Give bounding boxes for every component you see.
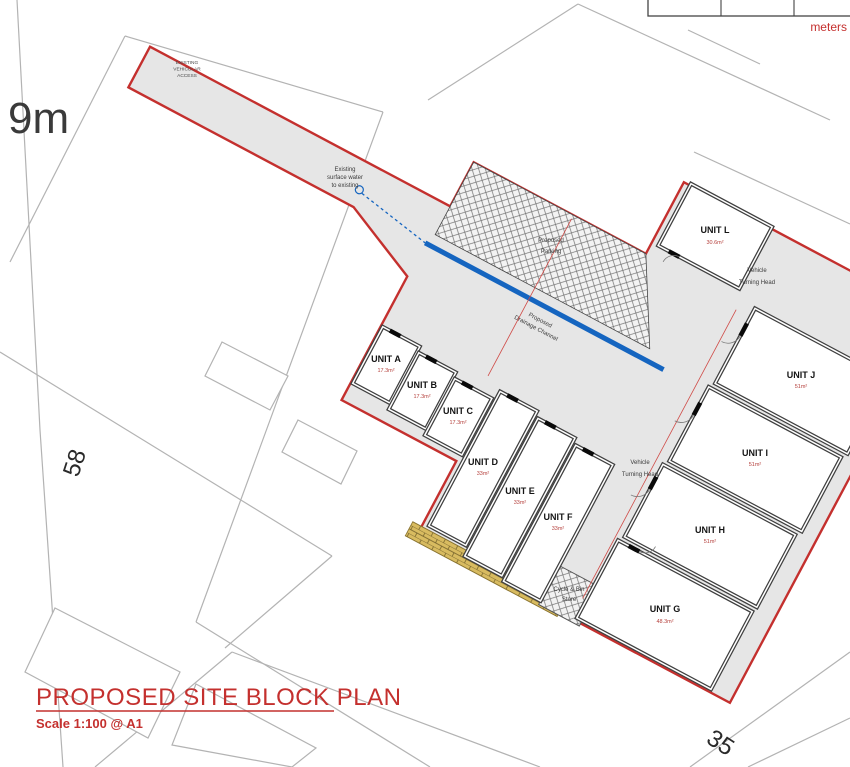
scale-bar-units-label: meters xyxy=(810,20,847,34)
unit-h-name: UNIT H xyxy=(695,525,725,535)
unit-g-name: UNIT G xyxy=(650,604,681,614)
scale-bar: meters xyxy=(648,0,850,34)
site-plan-rotated-group: Proposed Drainage Channel xyxy=(4,0,850,707)
unit-f-name: UNIT F xyxy=(544,512,573,522)
unit-e-area: 33m² xyxy=(514,500,527,506)
bin-store-line1: Cycle & Bin xyxy=(553,587,584,593)
unit-i-name: UNIT I xyxy=(742,448,768,458)
house-number-35: 35 xyxy=(702,724,739,761)
unit-d-name: UNIT D xyxy=(468,457,498,467)
unit-j-name: UNIT J xyxy=(787,370,816,380)
background-outbuilding xyxy=(282,420,357,484)
surface-water-line1: Existing xyxy=(334,167,355,173)
unit-b-name: UNIT B xyxy=(407,380,437,390)
surface-water-line3: to existing xyxy=(331,183,358,189)
unit-i-area: 51m² xyxy=(749,462,762,468)
unit-a-area: 17.3m² xyxy=(377,368,394,374)
parking-label-line1: Proposed xyxy=(538,238,564,244)
unit-c-name: UNIT C xyxy=(443,406,473,416)
unit-j-area: 51m² xyxy=(795,384,808,390)
unit-f-area: 33m² xyxy=(552,526,565,532)
unit-g-area: 48.3m² xyxy=(656,619,673,625)
turning-head-central-line1: Vehicle xyxy=(630,460,650,466)
access-label-line3: ACCESS xyxy=(177,73,197,79)
parking-label-line2: Parking xyxy=(541,249,561,255)
access-label-line2: VEHICULAR xyxy=(173,67,201,73)
unit-e-name: UNIT E xyxy=(505,486,535,496)
plan-scale-note: Scale 1:100 @ A1 xyxy=(36,716,143,731)
unit-d-area: 33m² xyxy=(477,471,490,477)
surface-water-line2: surface water xyxy=(327,175,363,181)
site-plan-canvas: meters Proposed Drainage Channel xyxy=(0,0,850,767)
bin-store-line2: Store xyxy=(562,597,577,603)
unit-l-name: UNIT L xyxy=(701,225,730,235)
turning-head-central-line2: Turning Head xyxy=(622,472,658,478)
access-label-line1: EXISTING xyxy=(176,60,199,66)
unit-l-area: 30.6m² xyxy=(706,240,723,246)
unit-c-area: 17.3m² xyxy=(449,420,466,426)
background-outbuilding xyxy=(205,342,288,410)
unit-b-area: 17.3m² xyxy=(413,394,430,400)
road-width-label: 9m xyxy=(8,94,69,143)
house-number-58: 58 xyxy=(58,446,92,480)
turning-head-upper-line2: Turning Head xyxy=(739,280,775,286)
turning-head-upper-line1: Vehicle xyxy=(747,268,767,274)
unit-a-name: UNIT A xyxy=(371,354,401,364)
plan-title: PROPOSED SITE BLOCK PLAN xyxy=(36,684,401,711)
unit-h-area: 51m² xyxy=(704,539,717,545)
plan-sheet: meters Proposed Drainage Channel xyxy=(0,0,850,767)
